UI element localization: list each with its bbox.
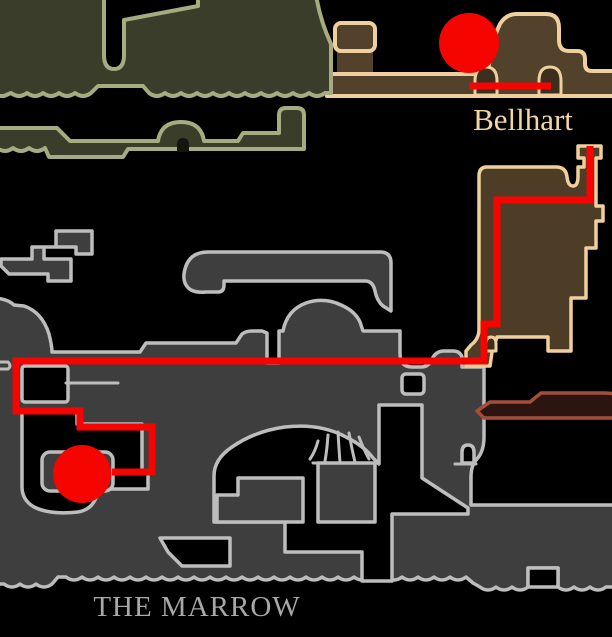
marrow-dome-rib-3: [338, 432, 340, 462]
bellhart-bump: [335, 23, 375, 51]
marrow-column-arch: [462, 445, 474, 463]
marrow-marker-icon[interactable]: [53, 445, 111, 503]
game-map-screen: Bellhart THE MARROW: [0, 0, 612, 637]
marrow-bottom-notch: [528, 568, 558, 587]
bellhart-marker-icon[interactable]: [439, 13, 499, 73]
olive-region-lower: [0, 108, 304, 157]
marrow-dome-pillar: [318, 463, 375, 522]
bellhart-label: Bellhart: [473, 102, 573, 137]
olive-arch-door: [177, 138, 189, 152]
marrow-zigzag-structure: [1, 231, 92, 281]
red-district-strip: [477, 393, 612, 418]
bellhart-arch-right: [539, 67, 561, 95]
marrow-small-room: [402, 374, 424, 394]
marrow-hook-corridor: [184, 252, 391, 311]
marrow-label: THE MARROW: [93, 591, 300, 623]
olive-region-upper: [0, 0, 331, 96]
marrow-room-upper-left: [22, 366, 68, 402]
world-map-canvas[interactable]: Bellhart THE MARROW: [0, 0, 612, 637]
